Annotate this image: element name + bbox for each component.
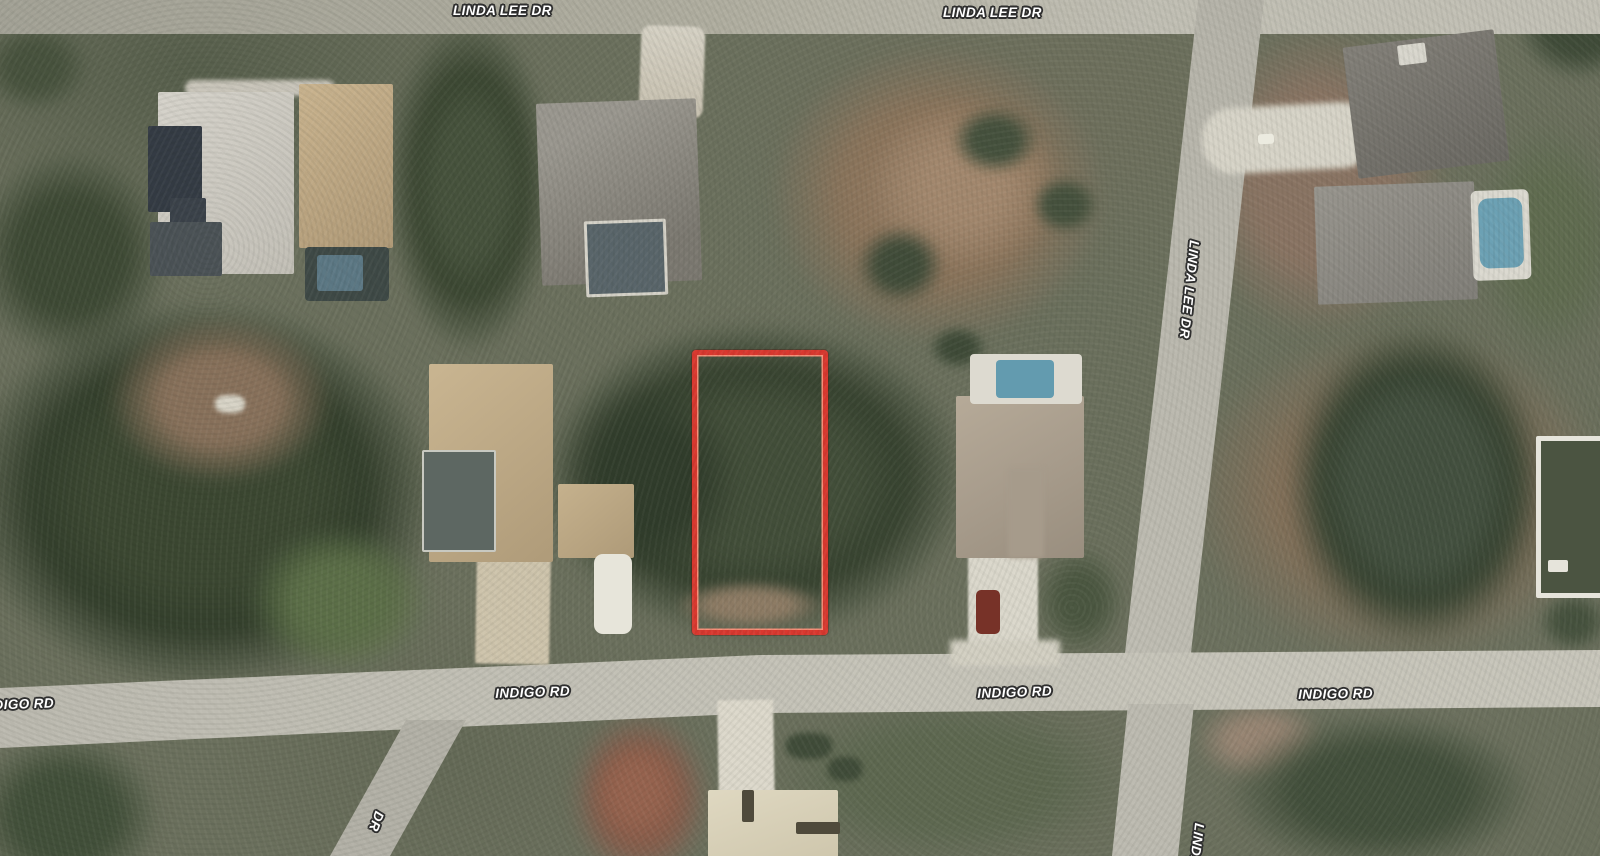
pool-lanai-topleft-1 [150,222,222,276]
street-label: INDIGO RD [1298,687,1373,702]
debris-white-left [215,395,245,413]
shrubs-left-bottom [245,525,435,675]
gable-midright [1008,468,1044,558]
rv-trailer-midleft [594,554,632,634]
pool-water-midright [996,360,1054,398]
house-topleft-2 [299,84,393,248]
house-bottommiddle-shadow-2 [796,822,840,834]
tree-clump-on-dirt-3 [855,225,945,305]
trees-bottomright [1225,712,1535,856]
pool-water-topleft-2 [317,255,363,291]
tree-clump-on-dirt-2 [1030,175,1100,235]
red-car-midright [976,590,1000,634]
tree-mass-right-block [1285,325,1550,645]
property-boundary-outline [692,350,828,635]
trees-right-of-driveway-midright [1035,545,1125,655]
satellite-map[interactable]: LINDA LEE DRLINDA LEE DRLINDA LEE DRINDI… [0,0,1600,856]
driveway-bottommiddle [717,700,775,805]
red-dirt-bottom-inner [595,745,680,840]
trees-right-block-small [1538,592,1600,652]
street-label: INDIGO RD [495,684,570,700]
gable-white-topright-1 [1397,42,1427,65]
pool-enclosure-right-edge [1536,436,1600,598]
garage-midleft [558,484,634,558]
tree-clump-on-dirt-1 [950,105,1040,175]
driveway-midright-flare [950,640,1060,666]
house-topright-1 [1343,29,1510,179]
house-topright-2 [1314,181,1478,305]
grass-tuft-1 [786,733,832,759]
road-linda-lee-top [0,0,1600,34]
white-car-blockB [1258,134,1275,145]
street-label: LINDA LEE DR [1181,822,1206,856]
pool-water-topright [1478,197,1524,268]
grass-tuft-2 [828,757,862,781]
street-label: INDIGO RD [977,684,1052,700]
pool-lanai-topmiddle [584,219,669,298]
house-bottommiddle-shadow-1 [742,790,754,822]
trees-topleft-corner [0,22,90,112]
street-label: LINDA LEE DR [453,4,552,18]
street-label: INDIGO RD [0,696,54,712]
trees-bottomleft [0,735,160,856]
driveway-midleft [475,551,551,664]
pool-deck-right-edge [1548,560,1568,572]
street-label: LINDA LEE DR [943,6,1042,20]
pool-lanai-midleft [422,450,496,552]
